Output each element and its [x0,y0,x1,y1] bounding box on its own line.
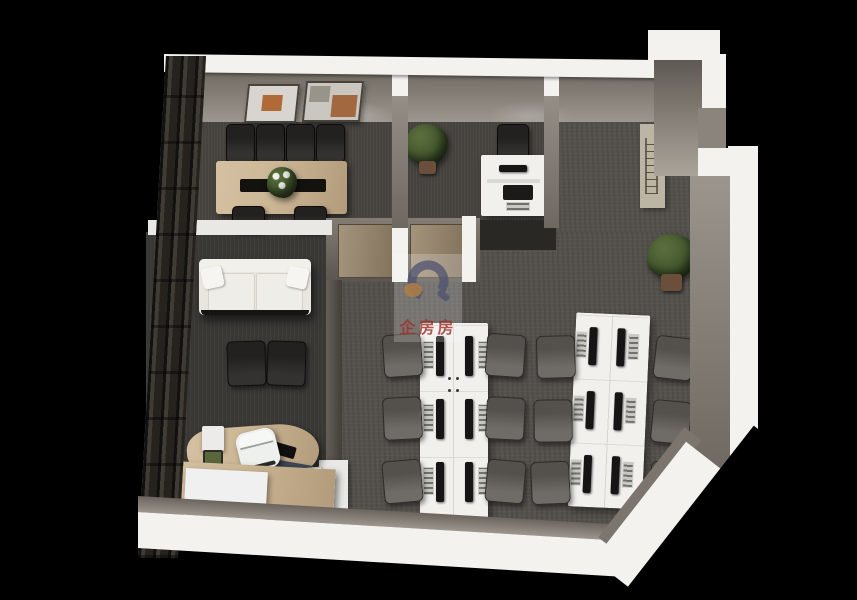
office-chair [286,124,315,163]
entrance-wall-block [700,54,726,112]
cable-grommet [456,377,459,380]
monitor [588,327,598,365]
keyboard [571,460,581,484]
office-chair [381,458,424,504]
cable-grommet [448,389,451,392]
watermark-logo-icon [398,256,456,312]
watermark: 企房房 [394,254,462,342]
plant-pot [419,161,436,174]
cable-grommet [456,389,459,392]
guest-chair [226,340,267,386]
monitor [436,462,444,502]
office-chair [382,396,423,441]
exec-office-partition [326,280,342,470]
sofa-pillow [200,265,225,290]
wood-door [338,224,394,278]
keyboard [623,463,633,487]
table-flower-centerpiece [267,167,297,198]
keyboard [424,405,433,431]
potted-plant [405,124,448,165]
monitor [503,185,533,200]
monitor [585,391,595,429]
office-chair [536,335,576,379]
monitor [436,336,444,376]
sofa-base-shadow [201,310,309,315]
monitor [465,399,473,439]
keyboard [574,396,584,420]
monitor [436,399,444,439]
monitor [465,336,473,376]
potted-plant [647,234,696,279]
keyboard [424,342,433,368]
keyboard [424,468,433,494]
monitor [582,455,592,493]
wall-art-center [261,95,283,111]
office-chair [530,461,571,506]
watermark-text: 企房房 [394,314,462,338]
entrance-niche-face [654,60,702,176]
office-chair [316,124,345,163]
plant-pot [661,274,682,291]
cable-grommet [448,377,451,380]
monitor [499,165,527,172]
monitor [613,392,623,430]
keyboard [507,203,529,210]
office-chair [485,333,527,379]
office-chair [256,124,285,163]
wall-art [302,81,364,122]
monitor [610,456,620,494]
keyboard [628,335,638,359]
wall-art [244,84,300,123]
white-side-unit [202,426,224,451]
wall-art-block [330,95,357,117]
office-floorplan-render: 企房房 [0,0,857,600]
monitor [465,462,473,502]
keyboard [576,332,586,356]
sofa [199,259,311,315]
monitor [616,328,626,366]
office-chair [226,124,255,163]
office-chair [533,399,572,442]
keyboard [626,399,636,423]
wall-art-block [309,86,331,102]
guest-chair [266,340,307,386]
desk-shelf [487,179,540,183]
door-frame [462,216,476,282]
entrance-wall-face [698,108,726,152]
east-wall-inner-face [690,176,730,476]
sofa-pillow [285,265,310,290]
